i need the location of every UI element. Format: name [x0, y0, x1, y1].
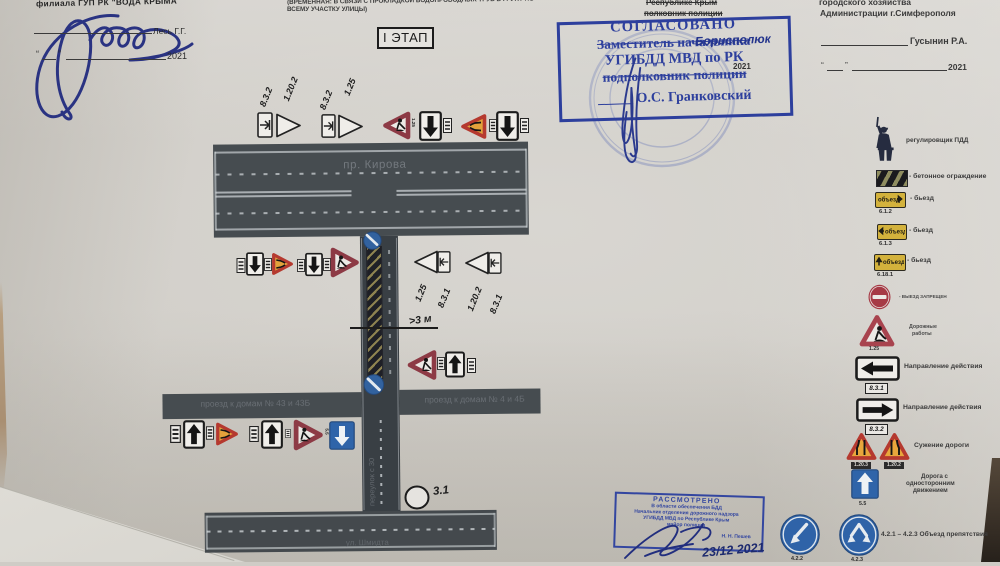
svg-text:объезд: объезд: [878, 197, 900, 204]
svg-text:объезд: объезд: [885, 229, 905, 236]
svg-text:объезд: объезд: [883, 259, 904, 266]
